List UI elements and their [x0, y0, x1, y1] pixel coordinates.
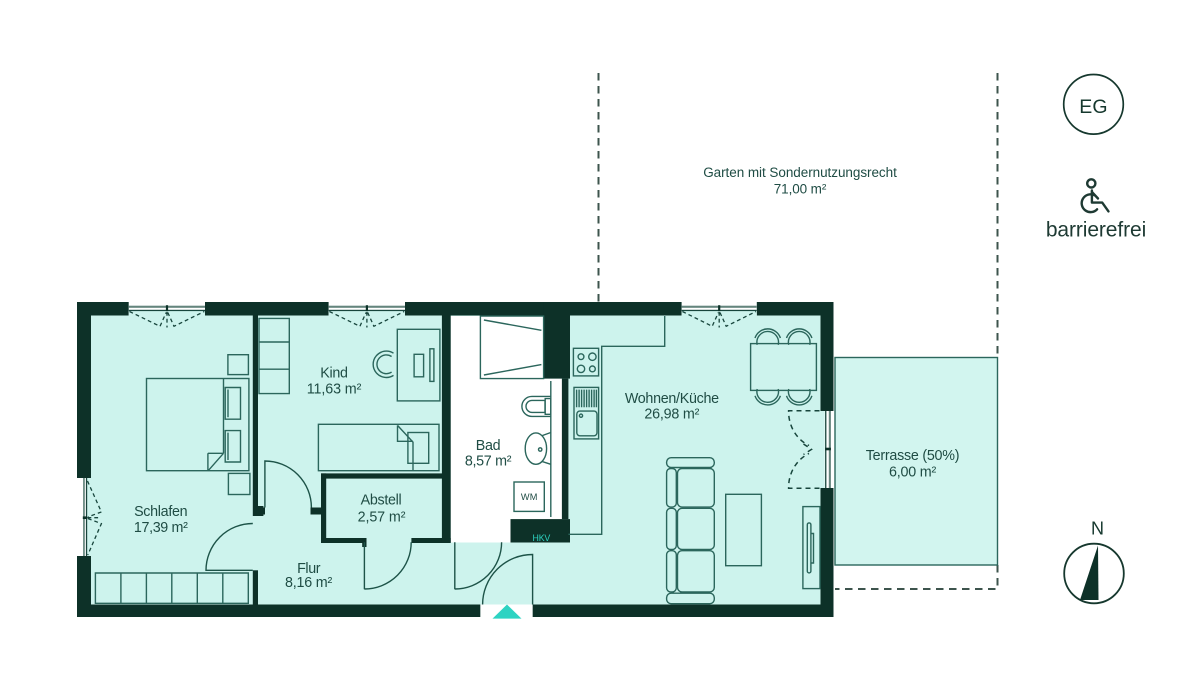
svg-text:71,00 m²: 71,00 m²	[774, 182, 827, 197]
svg-text:N: N	[1091, 519, 1104, 539]
svg-text:HKV: HKV	[533, 533, 551, 543]
svg-text:6,00 m²: 6,00 m²	[889, 465, 937, 481]
svg-text:Kind: Kind	[320, 365, 348, 381]
svg-text:Abstell: Abstell	[361, 492, 402, 508]
svg-text:17,39 m²: 17,39 m²	[134, 520, 188, 536]
svg-text:8,57 m²: 8,57 m²	[465, 454, 512, 470]
svg-text:26,98 m²: 26,98 m²	[644, 406, 699, 422]
svg-text:EG: EG	[1079, 96, 1108, 118]
svg-text:Terrasse (50%): Terrasse (50%)	[866, 448, 959, 464]
svg-text:Schlafen: Schlafen	[134, 504, 188, 520]
svg-text:Bad: Bad	[476, 438, 501, 454]
svg-text:2,57 m²: 2,57 m²	[358, 509, 406, 525]
svg-text:Garten mit Sondernutzungsrecht: Garten mit Sondernutzungsrecht	[703, 165, 897, 180]
svg-text:8,16 m²: 8,16 m²	[285, 575, 333, 591]
svg-text:Wohnen/Küche: Wohnen/Küche	[625, 391, 719, 407]
svg-text:barrierefrei: barrierefrei	[1046, 219, 1146, 242]
svg-text:11,63 m²: 11,63 m²	[307, 382, 362, 398]
svg-text:WM: WM	[521, 492, 538, 502]
